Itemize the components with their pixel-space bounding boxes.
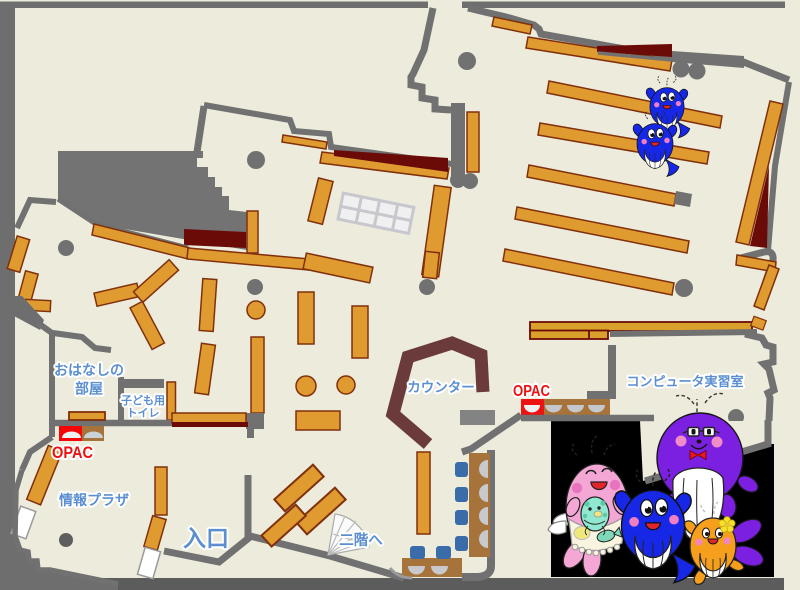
svg-text:二階へ: 二階へ (339, 531, 383, 549)
svg-text:情報プラザ: 情報プラザ (59, 492, 129, 508)
svg-text:トイレ: トイレ (127, 407, 160, 420)
svg-text:OPAC: OPAC (52, 444, 93, 462)
svg-text:子ども用: 子ども用 (121, 394, 165, 407)
svg-text:コンピュータ実習室: コンピュータ実習室 (626, 374, 743, 389)
svg-text:部屋: 部屋 (75, 381, 103, 397)
svg-text:おはなしの: おはなしの (54, 362, 124, 378)
svg-text:入口: 入口 (183, 525, 229, 551)
svg-text:OPAC: OPAC (513, 383, 550, 400)
svg-text:カウンター: カウンター (407, 380, 475, 395)
